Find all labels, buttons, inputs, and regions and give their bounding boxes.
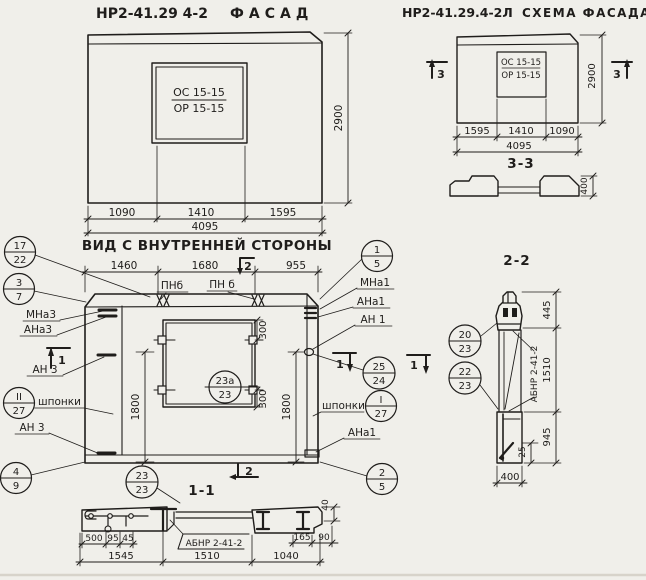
dim-1800-right: 1800 xyxy=(281,394,293,421)
callout-bottom-number: 22 xyxy=(14,255,27,266)
schema-opening-label-top: ОС 15-15 xyxy=(501,58,541,68)
inner-dim-top-right: 955 xyxy=(286,260,306,272)
facade-opening-label-bottom: ОР 15-15 xyxy=(174,102,225,115)
callout-bottom-number: 5 xyxy=(374,259,380,270)
facade-title: ФАСАД xyxy=(230,6,313,22)
callout-keys-right: I 27 xyxy=(366,391,397,422)
profile-3-3-dim: 400 xyxy=(580,177,590,194)
s11-rebar xyxy=(257,512,309,529)
callout-window-23a-23: 23а 23 xyxy=(205,371,259,403)
label-ana1: АНа1 xyxy=(357,296,385,308)
inner-dim-top-mid: 1680 xyxy=(192,260,219,272)
dim-1800-left: 1800 xyxy=(130,394,142,421)
callout-25-24: 25 24 xyxy=(363,357,395,389)
pnb-label-right: ПН б xyxy=(209,279,235,291)
inner-view: ВИД С ВНУТРЕННЕЙ СТОРОНЫ 1460 1680 955 2… xyxy=(1,237,431,504)
callout-20-23: 20 23 xyxy=(449,325,481,357)
callout-top-number: 22 xyxy=(459,367,472,378)
callout-bottom-number: 23 xyxy=(136,485,149,496)
pnb-label-left: ПНб xyxy=(161,280,183,292)
profile-3-3-view: 400 xyxy=(450,173,597,199)
callout-23-23: 23 23 xyxy=(126,466,158,498)
s22-dim-945: 945 xyxy=(542,427,553,446)
section-2-2-title: 2-2 xyxy=(503,253,530,269)
section-2-2-view: 2-2 445 1510 945 25 400 АБНР 2-41-2 20 2… xyxy=(449,253,561,487)
section-mark-1-right-a-digit: 1 xyxy=(336,358,344,371)
callout-2-5: 2 5 xyxy=(367,464,398,495)
technical-drawing: НР2-41.29 4-2 ФАСАД ОС 15-15 ОР 15-15 10… xyxy=(0,0,646,580)
section-1-1-title: 1-1 xyxy=(188,483,215,499)
callout-bottom-number: 9 xyxy=(13,481,19,492)
section-mark-1-left-digit: 1 xyxy=(58,354,66,367)
schema-section-mark-right-digit: 3 xyxy=(613,68,621,81)
callout-top-number: 20 xyxy=(459,330,472,341)
callout-1-5: 1 5 xyxy=(362,241,393,272)
schema-dim-height: 2900 xyxy=(587,63,598,88)
dim-300-bottom: 300 xyxy=(258,389,269,408)
s22-abnr-label: АБНР 2-41-2 xyxy=(530,346,540,403)
leader-1-5 xyxy=(320,259,362,299)
leader-an3-bottom xyxy=(15,433,100,454)
section-mark-2-bottom-digit: 2 xyxy=(245,465,253,478)
facade-panel-band xyxy=(88,43,322,44)
callout-bottom-number: 7 xyxy=(16,292,22,303)
facade-dim-right: 1595 xyxy=(270,207,297,219)
s22-dim-1510: 1510 xyxy=(542,357,553,382)
callout-top-number: 23а xyxy=(216,376,235,387)
callout-top-number: 2 xyxy=(379,468,385,479)
blueprint-sheet: НР2-41.29 4-2 ФАСАД ОС 15-15 ОР 15-15 10… xyxy=(0,0,646,580)
s11-dim-165: 165 xyxy=(293,533,310,543)
s11-t-element xyxy=(151,509,176,530)
leader-ana1-bottom xyxy=(316,438,380,452)
facade-dim-height: 2900 xyxy=(333,105,345,132)
schema-panel-band xyxy=(457,44,578,45)
label-ana1-bottom: АНа1 xyxy=(348,427,376,439)
leader-keys-left xyxy=(35,408,114,414)
section-mark-2-top: 2 xyxy=(237,258,254,275)
facade-opening-label-top: ОС 15-15 xyxy=(173,86,225,99)
s22-dim-25-line xyxy=(528,440,534,466)
facade-dim-total: 4095 xyxy=(192,221,219,233)
pnb-hatch-right xyxy=(252,295,264,306)
facade-window: ОС 15-15 ОР 15-15 xyxy=(152,63,247,143)
s22-dim-400: 400 xyxy=(500,472,519,483)
leader-20-23 xyxy=(481,323,497,336)
callout-17-22: 17 22 xyxy=(5,237,36,268)
facade-dim-mid: 1410 xyxy=(188,207,215,219)
schema-dim-total: 4095 xyxy=(506,141,531,152)
inner-window xyxy=(154,320,263,407)
section-mark-2-top-digit: 2 xyxy=(244,260,252,273)
section-mark-2-bottom: 2 xyxy=(229,464,258,480)
section-mark-1-right-b: 1 xyxy=(407,355,430,374)
label-an1: АН 1 xyxy=(360,314,385,326)
leader-keys-right xyxy=(313,412,364,416)
label-an3-bottom: АН 3 xyxy=(19,422,44,434)
dim-300-top: 300 xyxy=(258,320,269,339)
schema-mark: НР2-41.29.4-2Л xyxy=(402,5,513,20)
s11-dim-95: 95 xyxy=(107,534,118,544)
schema-extension-lines xyxy=(457,35,606,156)
s11-abnr-label: АБНР 2-41-2 xyxy=(186,539,243,549)
facade-dim-left: 1090 xyxy=(109,207,136,219)
callout-4-9: 4 9 xyxy=(1,463,32,494)
keys-marks-left xyxy=(98,310,116,453)
section-mark-1-right-a: 1 xyxy=(333,353,356,372)
schema-dim-right: 1090 xyxy=(549,126,574,137)
pnb-right-leader xyxy=(207,291,254,299)
callout-bottom-number: 27 xyxy=(13,406,26,417)
s22-dim-25: 25 xyxy=(518,446,528,457)
callout-top-number: II xyxy=(16,392,22,403)
callout-bottom-number: 23 xyxy=(459,381,472,392)
s11-dim-40: 40 xyxy=(321,499,331,511)
callout-top-number: 25 xyxy=(373,362,386,373)
s11-dim-1040: 1040 xyxy=(273,551,298,562)
s11-dim-500: 500 xyxy=(85,534,102,544)
leader-4-9 xyxy=(31,462,85,475)
callout-bottom-number: 27 xyxy=(375,409,388,420)
callout-bottom-number: 5 xyxy=(379,482,385,493)
schema-section-mark-right: 3 xyxy=(612,59,632,81)
s11-abnr-leader xyxy=(170,520,183,534)
s11-dim-1545: 1545 xyxy=(108,551,133,562)
schema-window: ОС 15-15 ОР 15-15 xyxy=(497,52,546,97)
s11-web xyxy=(176,512,252,518)
section-1-1-view: 1-1 АБНР 2-41-2 500 95 45 165 90 40 1545… xyxy=(76,483,340,566)
callout-top-number: I xyxy=(380,395,383,406)
facade-view: НР2-41.29 4-2 ФАСАД ОС 15-15 ОР 15-15 10… xyxy=(84,6,352,236)
s22-dim-445: 445 xyxy=(542,300,553,319)
callout-top-number: 3 xyxy=(16,278,22,289)
facade-panel-outline xyxy=(88,32,322,203)
schema-dim-mid: 1410 xyxy=(508,126,533,137)
inner-dim-top-left: 1460 xyxy=(111,260,138,272)
facade-dim-ticks xyxy=(85,30,351,236)
label-ana3: АНа3 xyxy=(24,324,52,336)
leader-2-5 xyxy=(320,462,367,476)
callout-bottom-number: 23 xyxy=(459,344,472,355)
label-mna1: МНа1 xyxy=(360,277,390,289)
leader-22-23 xyxy=(480,385,498,409)
callout-bottom-number: 24 xyxy=(373,376,386,387)
anchor-an1-mark xyxy=(305,349,314,356)
callout-top-number: 1 xyxy=(374,245,380,256)
inner-view-title: ВИД С ВНУТРЕННЕЙ СТОРОНЫ xyxy=(82,237,332,254)
profile-3-3-title: 3-3 xyxy=(507,156,534,172)
callout-22-23: 22 23 xyxy=(449,362,481,394)
schema-opening-label-bottom: ОР 15-15 xyxy=(501,71,540,81)
callout-top-number: 23 xyxy=(136,471,149,482)
facade-mark: НР2-41.29 4-2 xyxy=(96,6,208,22)
schema-dim-left: 1595 xyxy=(464,126,489,137)
callout-keys-left: II 27 xyxy=(4,388,35,419)
s11-dim-1510: 1510 xyxy=(194,551,219,562)
s22-right-dims-line xyxy=(553,289,559,466)
label-shponki-right: шпонки xyxy=(322,400,365,412)
schema-section-mark-left: 3 xyxy=(427,59,447,81)
leader-3-7 xyxy=(34,291,86,302)
schema-title: СХЕМА ФАСАДА xyxy=(522,6,646,20)
label-shponki-left: шпонки xyxy=(38,396,81,408)
inner-panel-lines xyxy=(85,295,318,455)
section-mark-1-right-b-digit: 1 xyxy=(410,359,418,372)
callout-bottom-number: 23 xyxy=(219,390,232,401)
schema-section-mark-left-digit: 3 xyxy=(437,68,445,81)
label-mna3: МНа3 xyxy=(26,309,56,321)
dim-1800-left-line xyxy=(142,349,148,465)
schema-view: НР2-41.29.4-2Л СХЕМА ФАСАДА ОС 15-15 ОР … xyxy=(402,5,646,199)
s11-dim-45: 45 xyxy=(122,534,133,544)
leader-an1 xyxy=(313,325,392,349)
dim-1800-right-line xyxy=(293,349,299,465)
label-an3-top: АН 3 xyxy=(32,364,57,376)
callout-3-7: 3 7 xyxy=(4,274,35,305)
leader-23-23 xyxy=(157,488,180,503)
callout-top-number: 4 xyxy=(13,467,19,478)
callout-top-number: 17 xyxy=(14,241,27,252)
